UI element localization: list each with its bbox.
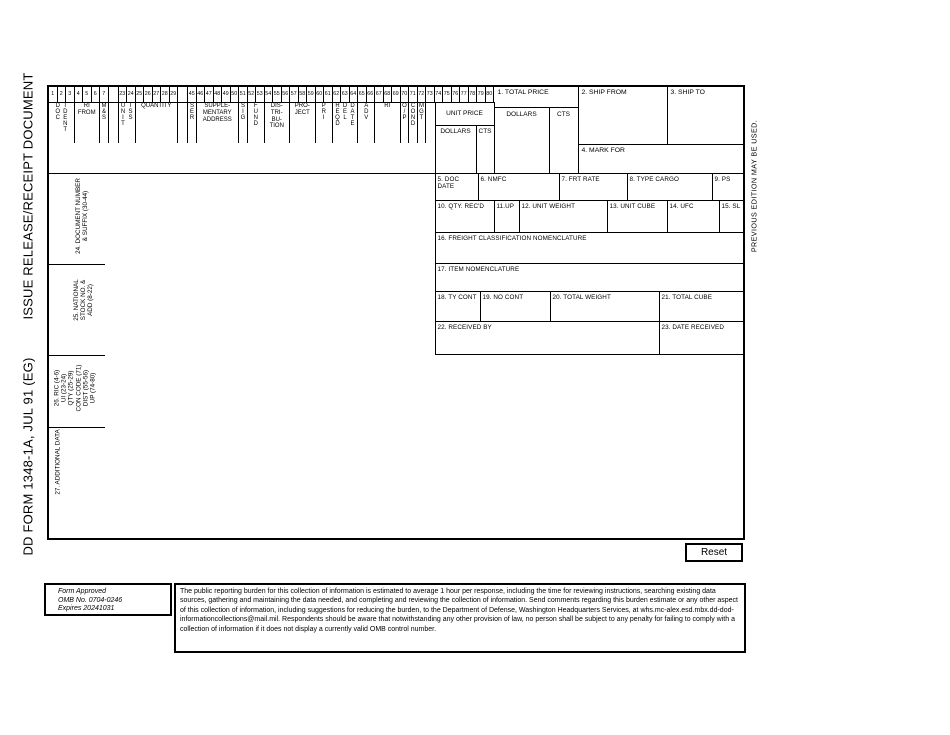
card-column-number-54: 54 xyxy=(265,87,274,102)
label-text: RI xyxy=(75,103,100,110)
unit-weight-field[interactable]: 12. UNIT WEIGHT xyxy=(520,201,608,232)
card-column-number-row: 1234567232425262728294546474849505152535… xyxy=(49,87,495,103)
card-column-number-57: 57 xyxy=(290,87,299,102)
card-column-number-48: 48 xyxy=(214,87,223,102)
burden-statement: The public reporting burden for this col… xyxy=(174,583,746,653)
section-25-national-stock-no-label: 25. NATIONAL STOCK NO. & ADD (8-22) xyxy=(73,279,95,321)
card-column-number-3: 3 xyxy=(66,87,75,102)
col-header-m-and-s: M&S xyxy=(100,102,109,143)
ship-to-field[interactable]: 3. SHIP TO xyxy=(668,87,744,145)
label-text: QUANTITY xyxy=(136,103,178,110)
col-header-fund: FUND xyxy=(248,102,265,143)
nmfc-field[interactable]: 6. NMFC xyxy=(479,174,560,200)
total-cube-field[interactable]: 21. TOTAL CUBE xyxy=(660,292,744,321)
card-column-number-5: 5 xyxy=(83,87,92,102)
label-text: JECT xyxy=(290,110,315,117)
field-row-18-21: 18. TY CONT 19. NO CONT 20. TOTAL WEIGHT… xyxy=(436,292,744,322)
col-gap-30-44 xyxy=(178,102,188,143)
section-divider-24-25 xyxy=(49,264,105,265)
label-text: REQD xyxy=(334,103,341,127)
date-received-field[interactable]: 23. DATE RECEIVED xyxy=(660,322,744,354)
omb-approval-line: Form Approved xyxy=(58,588,170,597)
label-words: DOC IDENT xyxy=(49,103,74,133)
card-column-number-65: 65 xyxy=(358,87,367,102)
card-column-number-50: 50 xyxy=(231,87,240,102)
label-text: ADDRESS xyxy=(197,117,239,124)
ufc-field[interactable]: 14. UFC xyxy=(668,201,720,232)
section-divider-25-26 xyxy=(49,355,105,356)
ship-from-label: 2. SHIP FROM xyxy=(579,87,667,96)
card-column-number-24: 24 xyxy=(127,87,136,102)
card-column-number-53: 53 xyxy=(256,87,265,102)
label-text: MGT xyxy=(418,103,425,121)
omb-approval-box: Form Approved OMB No. 0704-0246 Expires … xyxy=(44,583,172,616)
card-column-number-68: 68 xyxy=(384,87,393,102)
label-text: TRI- xyxy=(265,110,290,117)
label-text: IDENT xyxy=(62,103,69,133)
total-price-subcells: DOLLARS CTS xyxy=(495,108,578,173)
label-text: SER xyxy=(189,103,196,121)
label-text: UNIT xyxy=(120,103,127,127)
label-text: DATE xyxy=(349,103,356,127)
received-by-field[interactable]: 22. RECEIVED BY xyxy=(436,322,660,354)
card-column-number-78: 78 xyxy=(469,87,478,102)
card-column-number-52: 52 xyxy=(248,87,257,102)
label-text: O/P xyxy=(401,103,408,121)
col-header-distribution: DIS- TRI- BU- TION xyxy=(265,102,291,143)
card-column-number-60: 60 xyxy=(316,87,325,102)
mark-for-field[interactable]: 4. MARK FOR xyxy=(579,145,744,173)
card-column-number-27: 27 xyxy=(153,87,162,102)
label-text: ADV xyxy=(363,103,370,121)
sl-field[interactable]: 15. SL xyxy=(720,201,744,232)
card-column-number-4: 4 xyxy=(75,87,84,102)
ps-field[interactable]: 9. PS xyxy=(713,174,744,200)
total-price-block[interactable]: 1. TOTAL PRICE DOLLARS CTS xyxy=(495,87,579,173)
reset-button[interactable]: Reset xyxy=(685,543,743,562)
form-id: DD FORM 1348-1A, JUL 91 (EG) xyxy=(21,358,36,556)
field-rows: 5. DOC DATE 6. NMFC 7. FRT RATE 8. TYPE … xyxy=(435,174,744,355)
type-cargo-field[interactable]: 8. TYPE CARGO xyxy=(628,174,713,200)
label-text: COND xyxy=(410,103,417,127)
form-title: DD FORM 1348-1A, JUL 91 (EG) ISSUE RELEA… xyxy=(21,72,36,555)
field-row-17: 17. ITEM NOMENCLATURE xyxy=(436,264,744,292)
label-text: SIG xyxy=(240,103,247,121)
card-column-number-79: 79 xyxy=(477,87,486,102)
col-header-project: PRO- JECT xyxy=(290,102,316,143)
label-text: DOC xyxy=(54,103,61,133)
card-column-number-76: 76 xyxy=(452,87,461,102)
item-nomenclature-field[interactable]: 17. ITEM NOMENCLATURE xyxy=(436,264,744,291)
label-text: MENTARY xyxy=(197,110,239,117)
col-header-adv: ADV xyxy=(358,102,375,143)
label-text: FROM xyxy=(75,110,100,117)
total-price-cents-cell[interactable]: CTS xyxy=(550,108,578,173)
col-header-o-p: O/P xyxy=(401,102,410,143)
card-column-number-58: 58 xyxy=(299,87,308,102)
no-cont-field[interactable]: 19. NO CONT xyxy=(481,292,551,321)
card-column-number-66: 66 xyxy=(367,87,376,102)
label-text: DEL xyxy=(342,103,349,127)
card-column-number-29: 29 xyxy=(170,87,179,102)
label-text: RI xyxy=(375,103,400,110)
field-row-16: 16. FREIGHT CLASSIFICATION NOMENCLATURE xyxy=(436,233,744,264)
mark-for-label: 4. MARK FOR xyxy=(579,145,744,154)
card-column-number-56: 56 xyxy=(282,87,291,102)
card-column-number-74: 74 xyxy=(435,87,444,102)
card-column-number-80: 80 xyxy=(486,87,495,102)
col-header-ser: SER xyxy=(188,102,197,143)
label-text: FUND xyxy=(252,103,259,127)
card-column-number-28: 28 xyxy=(161,87,170,102)
label-text: PRO- xyxy=(290,103,315,110)
card-column-number-71: 71 xyxy=(409,87,418,102)
doc-date-field[interactable]: 5. DOC DATE xyxy=(436,174,479,200)
card-column-number-75: 75 xyxy=(443,87,452,102)
label-text: M&S xyxy=(101,103,108,121)
card-column-number-46: 46 xyxy=(197,87,206,102)
label-text: SUPPLE- xyxy=(197,103,239,110)
col-header-unit-iss: UNIT ISS xyxy=(119,102,136,143)
card-column-number-2: 2 xyxy=(58,87,67,102)
card-column-number-61: 61 xyxy=(324,87,333,102)
section-24-document-number-label: 24. DOCUMENT NUMBER & SUFFIX (30-44) xyxy=(75,178,89,254)
omb-approval-line: OMB No. 0704-0246 xyxy=(58,597,170,606)
total-price-dollars-cell[interactable]: DOLLARS xyxy=(495,108,550,173)
field-row-22-23: 22. RECEIVED BY 23. DATE RECEIVED xyxy=(436,322,744,355)
label-text: DIS- xyxy=(265,103,290,110)
card-column-number-67: 67 xyxy=(375,87,384,102)
qty-recd-field[interactable]: 10. QTY. REC'D xyxy=(436,201,495,232)
form-name: ISSUE RELEASE/RECEIPT DOCUMENT xyxy=(21,72,36,319)
unit-price-label: UNIT PRICE xyxy=(436,102,494,126)
col-header-cond: COND xyxy=(409,102,418,143)
dd-form-1348-1a-page: DD FORM 1348-1A, JUL 91 (EG) ISSUE RELEA… xyxy=(0,0,950,735)
card-column-number-51: 51 xyxy=(239,87,248,102)
card-column-number-72: 72 xyxy=(418,87,427,102)
card-column-number-49: 49 xyxy=(222,87,231,102)
card-column-number-63: 63 xyxy=(341,87,350,102)
ship-to-label: 3. SHIP TO xyxy=(668,87,744,96)
field-row-5-9: 5. DOC DATE 6. NMFC 7. FRT RATE 8. TYPE … xyxy=(436,174,744,201)
up-field[interactable]: 11.UP xyxy=(495,201,520,232)
card-column-number-62: 62 xyxy=(333,87,342,102)
total-price-label: 1. TOTAL PRICE xyxy=(495,87,578,108)
card-column-number-6: 6 xyxy=(92,87,101,102)
card-column-number-69: 69 xyxy=(392,87,401,102)
freight-classification-field[interactable]: 16. FREIGHT CLASSIFICATION NOMENCLATURE xyxy=(436,233,744,263)
label-text: BU- xyxy=(265,117,290,124)
total-weight-field[interactable]: 20. TOTAL WEIGHT xyxy=(551,292,660,321)
col-header-reqd-del-date: REQD DEL DATE xyxy=(333,102,359,143)
card-column-number-25: 25 xyxy=(136,87,145,102)
card-column-number-55: 55 xyxy=(273,87,282,102)
section-27-additional-data-label: 27. ADDITIONAL DATA xyxy=(54,429,61,494)
label-text: PRI xyxy=(320,103,327,121)
col-header-quantity: QUANTITY xyxy=(136,102,179,143)
card-column-gap xyxy=(178,87,188,102)
omb-approval-line: Expires 20241031 xyxy=(58,605,170,614)
card-column-number-64: 64 xyxy=(350,87,359,102)
card-column-number-7: 7 xyxy=(100,87,109,102)
col-gap-8-22 xyxy=(109,102,119,143)
card-column-number-73: 73 xyxy=(426,87,435,102)
card-column-label-row: DOC IDENT RI FROM M&S UNIT ISS QUANTITY xyxy=(49,102,435,143)
unit-price-subcells: DOLLARS CTS xyxy=(436,126,494,173)
card-column-gap xyxy=(109,87,119,102)
col-header-pri: PRI xyxy=(316,102,333,143)
col-header-ri-from: RI FROM xyxy=(75,102,101,143)
card-column-number-45: 45 xyxy=(188,87,197,102)
section-divider-26-27 xyxy=(49,427,105,428)
ty-cont-field[interactable]: 18. TY CONT xyxy=(436,292,481,321)
edition-note: PREVIOUS EDITION MAY BE USED. xyxy=(750,120,759,252)
frt-rate-field[interactable]: 7. FRT RATE xyxy=(560,174,628,200)
unit-price-block[interactable]: UNIT PRICE DOLLARS CTS xyxy=(435,102,495,173)
card-column-number-1: 1 xyxy=(49,87,58,102)
col-header-blank-73 xyxy=(426,102,435,143)
card-column-number-77: 77 xyxy=(460,87,469,102)
card-column-number-47: 47 xyxy=(205,87,214,102)
col-header-doc-ident: DOC IDENT xyxy=(49,102,75,143)
label-text: TION xyxy=(265,123,290,130)
col-header-supplementary-address: SUPPLE- MENTARY ADDRESS xyxy=(197,102,240,143)
unit-price-dollars-cell[interactable]: DOLLARS xyxy=(436,126,477,173)
col-header-ri: RI xyxy=(375,102,401,143)
ship-from-field[interactable]: 2. SHIP FROM xyxy=(579,87,668,145)
field-row-10-15: 10. QTY. REC'D 11.UP 12. UNIT WEIGHT 13.… xyxy=(436,201,744,233)
card-column-number-26: 26 xyxy=(144,87,153,102)
card-column-number-23: 23 xyxy=(119,87,128,102)
unit-price-cents-cell[interactable]: CTS xyxy=(477,126,494,173)
col-header-mgt: MGT xyxy=(418,102,427,143)
form-body: 1234567232425262728294546474849505152535… xyxy=(47,85,745,540)
section-26-ric-label: 26. RIC (4-6) UI (23-24) QTY (25-29) CON… xyxy=(53,365,96,412)
card-column-number-70: 70 xyxy=(401,87,410,102)
unit-cube-field[interactable]: 13. UNIT CUBE xyxy=(608,201,668,232)
col-header-sig: SIG xyxy=(239,102,248,143)
label-text: ISS xyxy=(127,103,134,127)
card-column-number-59: 59 xyxy=(307,87,316,102)
